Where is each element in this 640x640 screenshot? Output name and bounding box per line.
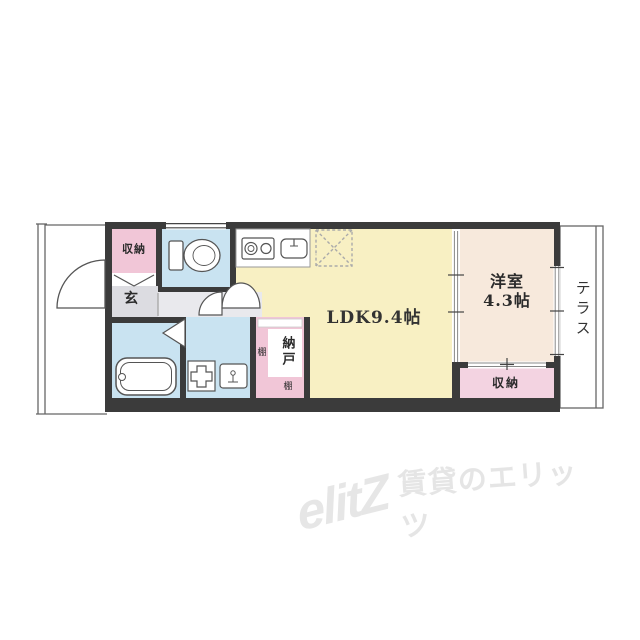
ldk-room-bottom [310,317,452,398]
storeroom-top-shelf [258,319,302,327]
terrace-label: テラス [573,280,590,340]
shelf-bottom-label: 棚 [283,382,292,392]
gas-stove-icon [242,238,274,259]
bedroom-closet-label: 収納 [492,377,520,391]
western-room-label-line2: 4.3帖 [483,291,531,310]
washing-machine-icon [188,361,215,391]
floor-plan-image: 収納 玄 LDK9.4帖 洋室 4.3帖 収納 納戸 棚 棚 テラス elitZ… [0,0,640,640]
floor-plan-graphic [0,0,640,640]
bathtub-icon [116,358,176,395]
western-room-label-line1: 洋室 [483,272,531,291]
shelf-left-label: 棚 [257,348,266,358]
toilet-icon [169,240,220,272]
entrance-label: 玄 [124,291,138,307]
storeroom-label: 納戸 [279,336,294,368]
entrance-closet-label: 収納 [122,244,146,257]
porch-area [36,224,107,414]
western-room-label: 洋室 4.3帖 [483,272,531,310]
entrance-door-arc [57,260,105,308]
vanity-sink-icon [220,364,247,388]
ldk-label: LDK9.4帖 [326,309,421,329]
window-toilet [166,222,226,230]
kitchen-sink-icon [281,239,307,258]
closet-door-strip [112,273,156,286]
